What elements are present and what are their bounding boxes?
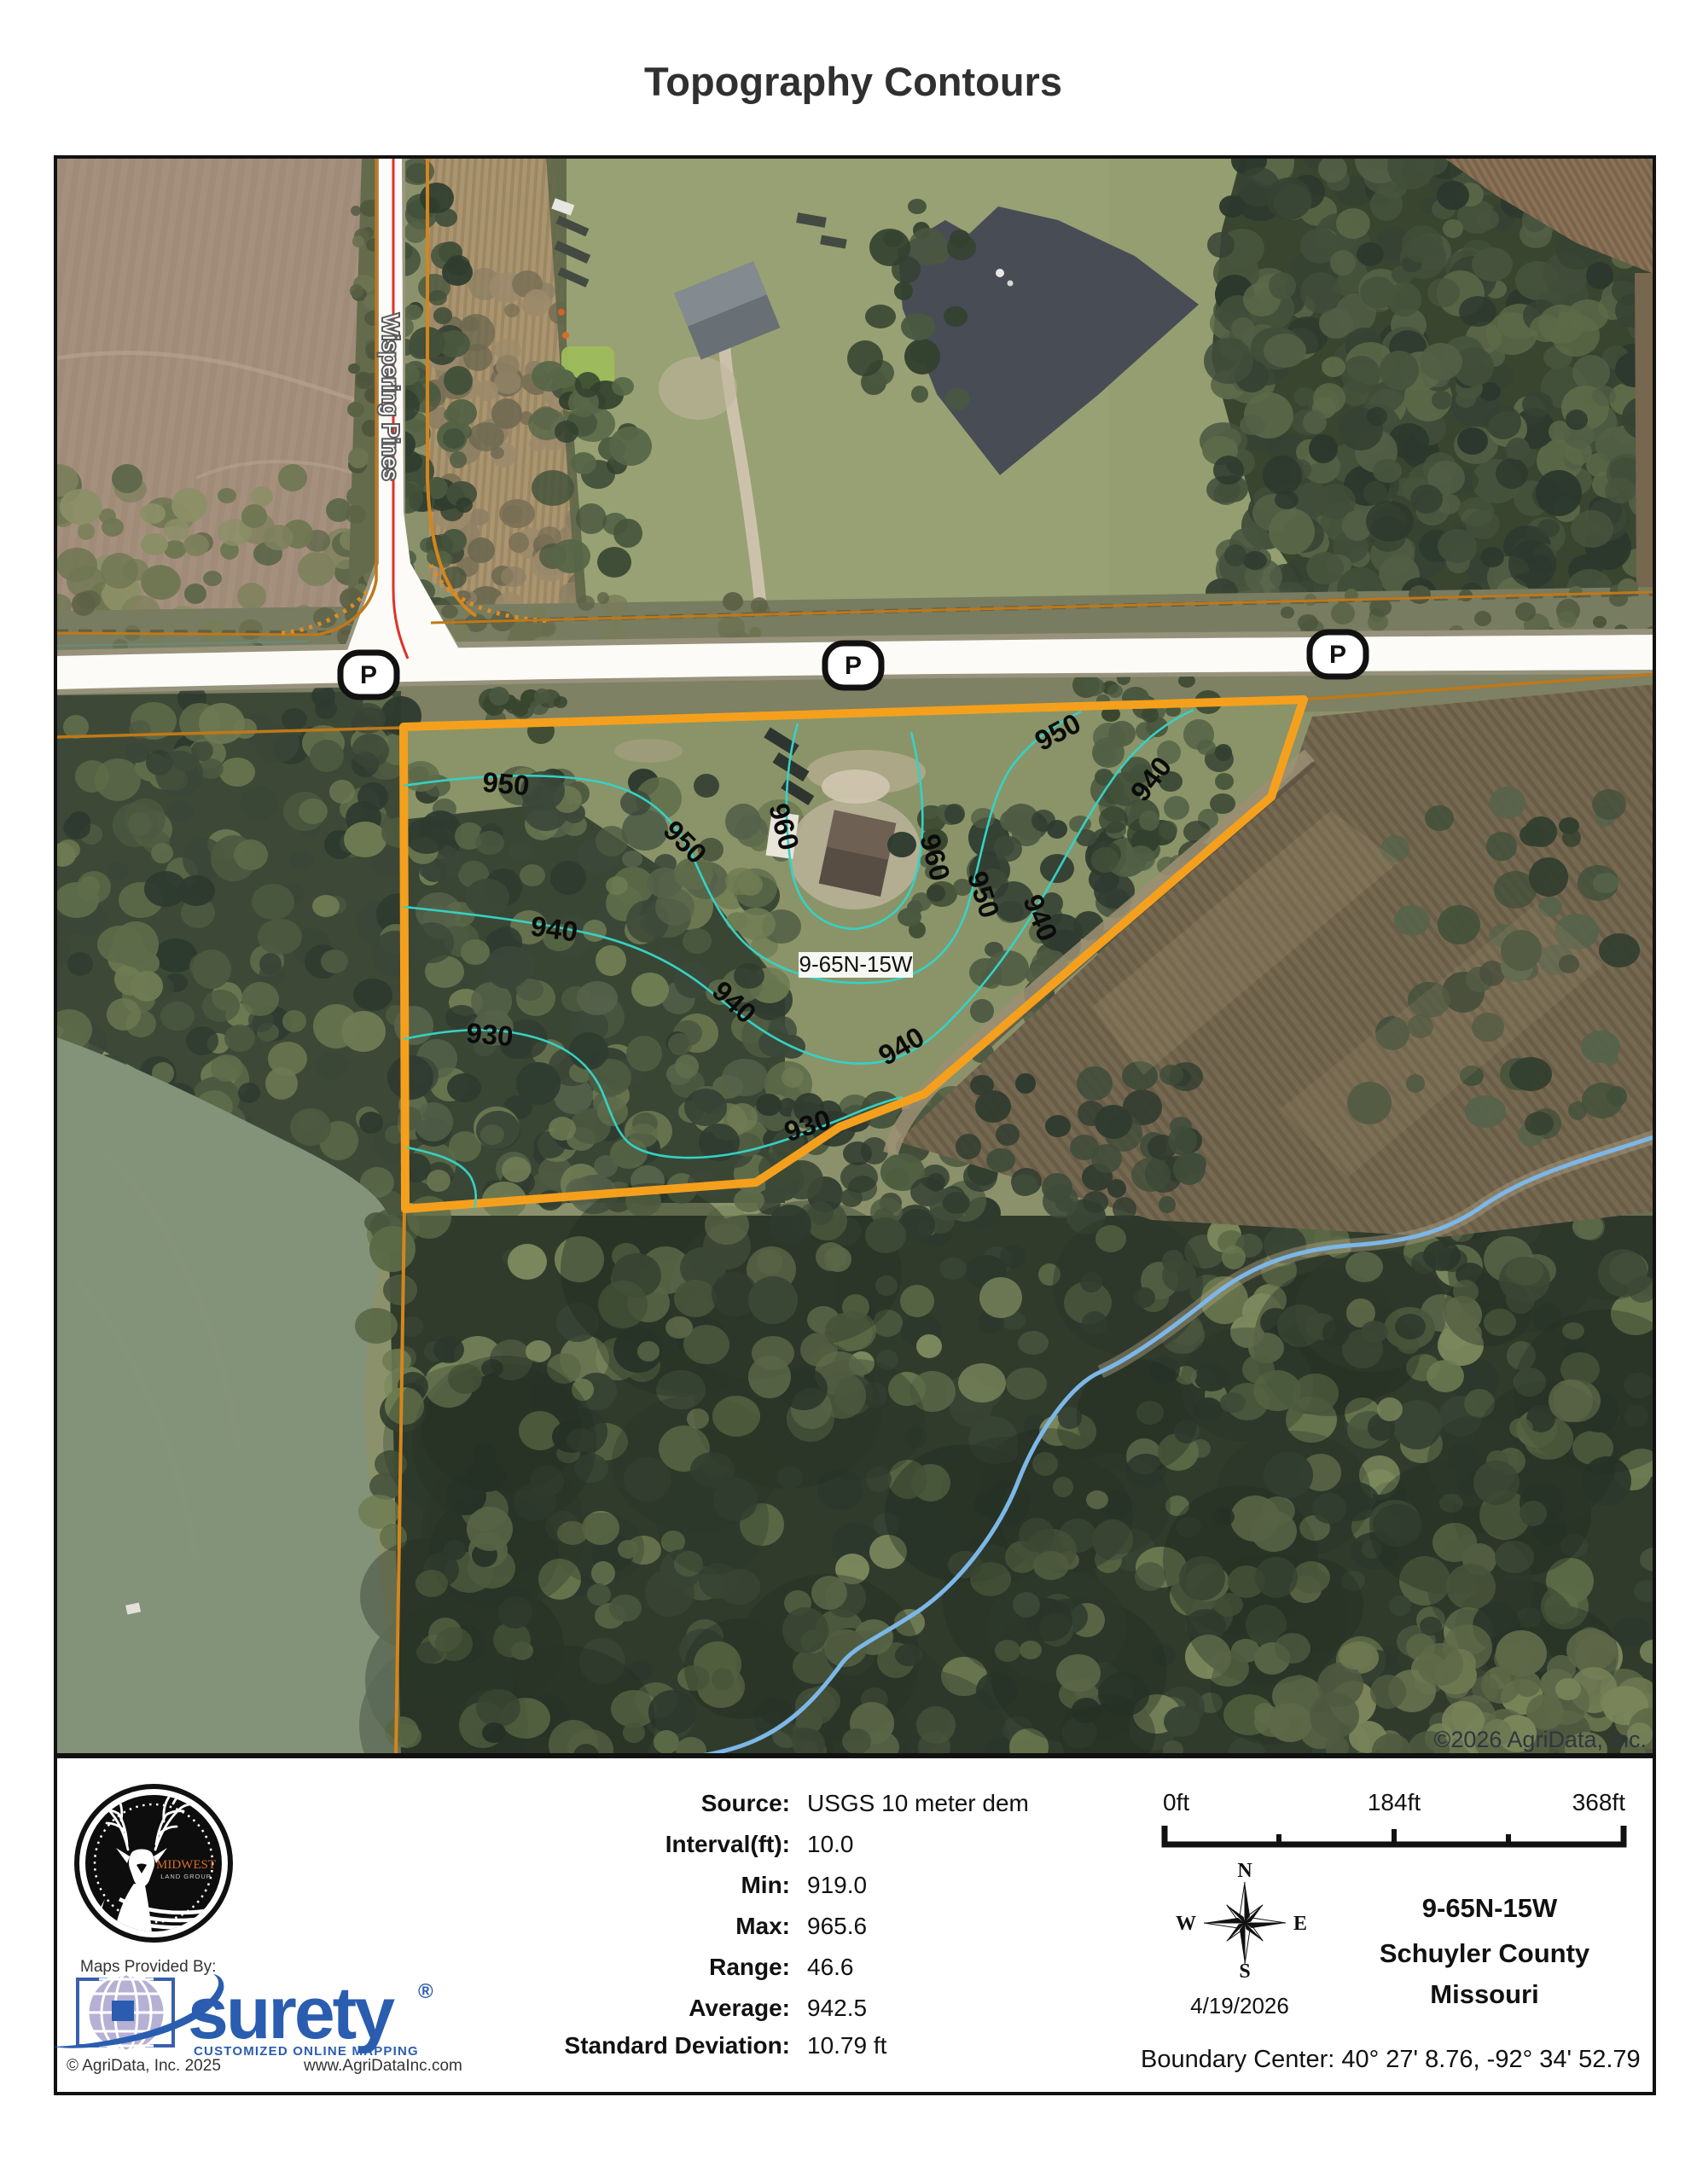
svg-text:950: 950 — [481, 766, 531, 802]
svg-text:Missouri: Missouri — [1430, 1979, 1538, 2009]
svg-text:Interval(ft):: Interval(ft): — [665, 1831, 790, 1857]
svg-text:9-65N-15W: 9-65N-15W — [799, 951, 913, 977]
svg-text:46.6: 46.6 — [807, 1954, 854, 1980]
svg-text:Topography Contours: Topography Contours — [644, 59, 1062, 104]
svg-text:9-65N-15W: 9-65N-15W — [1422, 1893, 1558, 1923]
svg-text:Schuyler County: Schuyler County — [1380, 1938, 1590, 1968]
svg-text:0ft: 0ft — [1163, 1789, 1189, 1815]
svg-text:Max:: Max: — [735, 1913, 790, 1939]
svg-text:940: 940 — [529, 909, 580, 947]
svg-text:Boundary Center: 40° 27' 8.76,: Boundary Center: 40° 27' 8.76, -92° 34' … — [1141, 2046, 1641, 2073]
svg-text:368ft: 368ft — [1572, 1789, 1625, 1815]
svg-text:© AgriData, Inc. 2025: © AgriData, Inc. 2025 — [67, 2057, 221, 2075]
svg-text:P: P — [1329, 641, 1346, 669]
svg-text:surety: surety — [188, 1972, 395, 2054]
svg-text:©2026 AgriData, Inc.: ©2026 AgriData, Inc. — [1433, 1727, 1647, 1752]
svg-text:N: N — [1237, 1860, 1252, 1882]
svg-text:4/19/2026: 4/19/2026 — [1190, 1993, 1289, 2018]
svg-text:Standard Deviation:: Standard Deviation: — [565, 2032, 790, 2059]
svg-text:S: S — [1239, 1960, 1250, 1983]
svg-text:942.5: 942.5 — [807, 1995, 867, 2021]
svg-text:Min:: Min: — [741, 1872, 790, 1898]
svg-text:Range:: Range: — [709, 1954, 790, 1980]
svg-text:®: ® — [418, 1980, 433, 2003]
svg-text:10.79 ft: 10.79 ft — [807, 2032, 887, 2059]
svg-text:965.6: 965.6 — [807, 1913, 867, 1939]
svg-text:P: P — [845, 652, 862, 680]
svg-text:www.AgriDataInc.com: www.AgriDataInc.com — [303, 2057, 462, 2075]
svg-text:930: 930 — [465, 1017, 514, 1053]
svg-text:MIDWEST: MIDWEST — [156, 1858, 216, 1872]
svg-text:W: W — [1176, 1913, 1196, 1935]
svg-text:LAND GROUP: LAND GROUP — [160, 1873, 212, 1880]
svg-text:P: P — [360, 661, 377, 689]
svg-text:Source:: Source: — [701, 1790, 790, 1816]
svg-text:E: E — [1293, 1913, 1307, 1935]
svg-text:919.0: 919.0 — [807, 1872, 867, 1898]
svg-text:Average:: Average: — [689, 1995, 790, 2021]
svg-text:184ft: 184ft — [1368, 1789, 1421, 1815]
svg-text:Wispering Pines: Wispering Pines — [378, 314, 404, 480]
svg-text:10.0: 10.0 — [807, 1831, 854, 1857]
svg-text:USGS 10 meter dem: USGS 10 meter dem — [807, 1790, 1029, 1816]
